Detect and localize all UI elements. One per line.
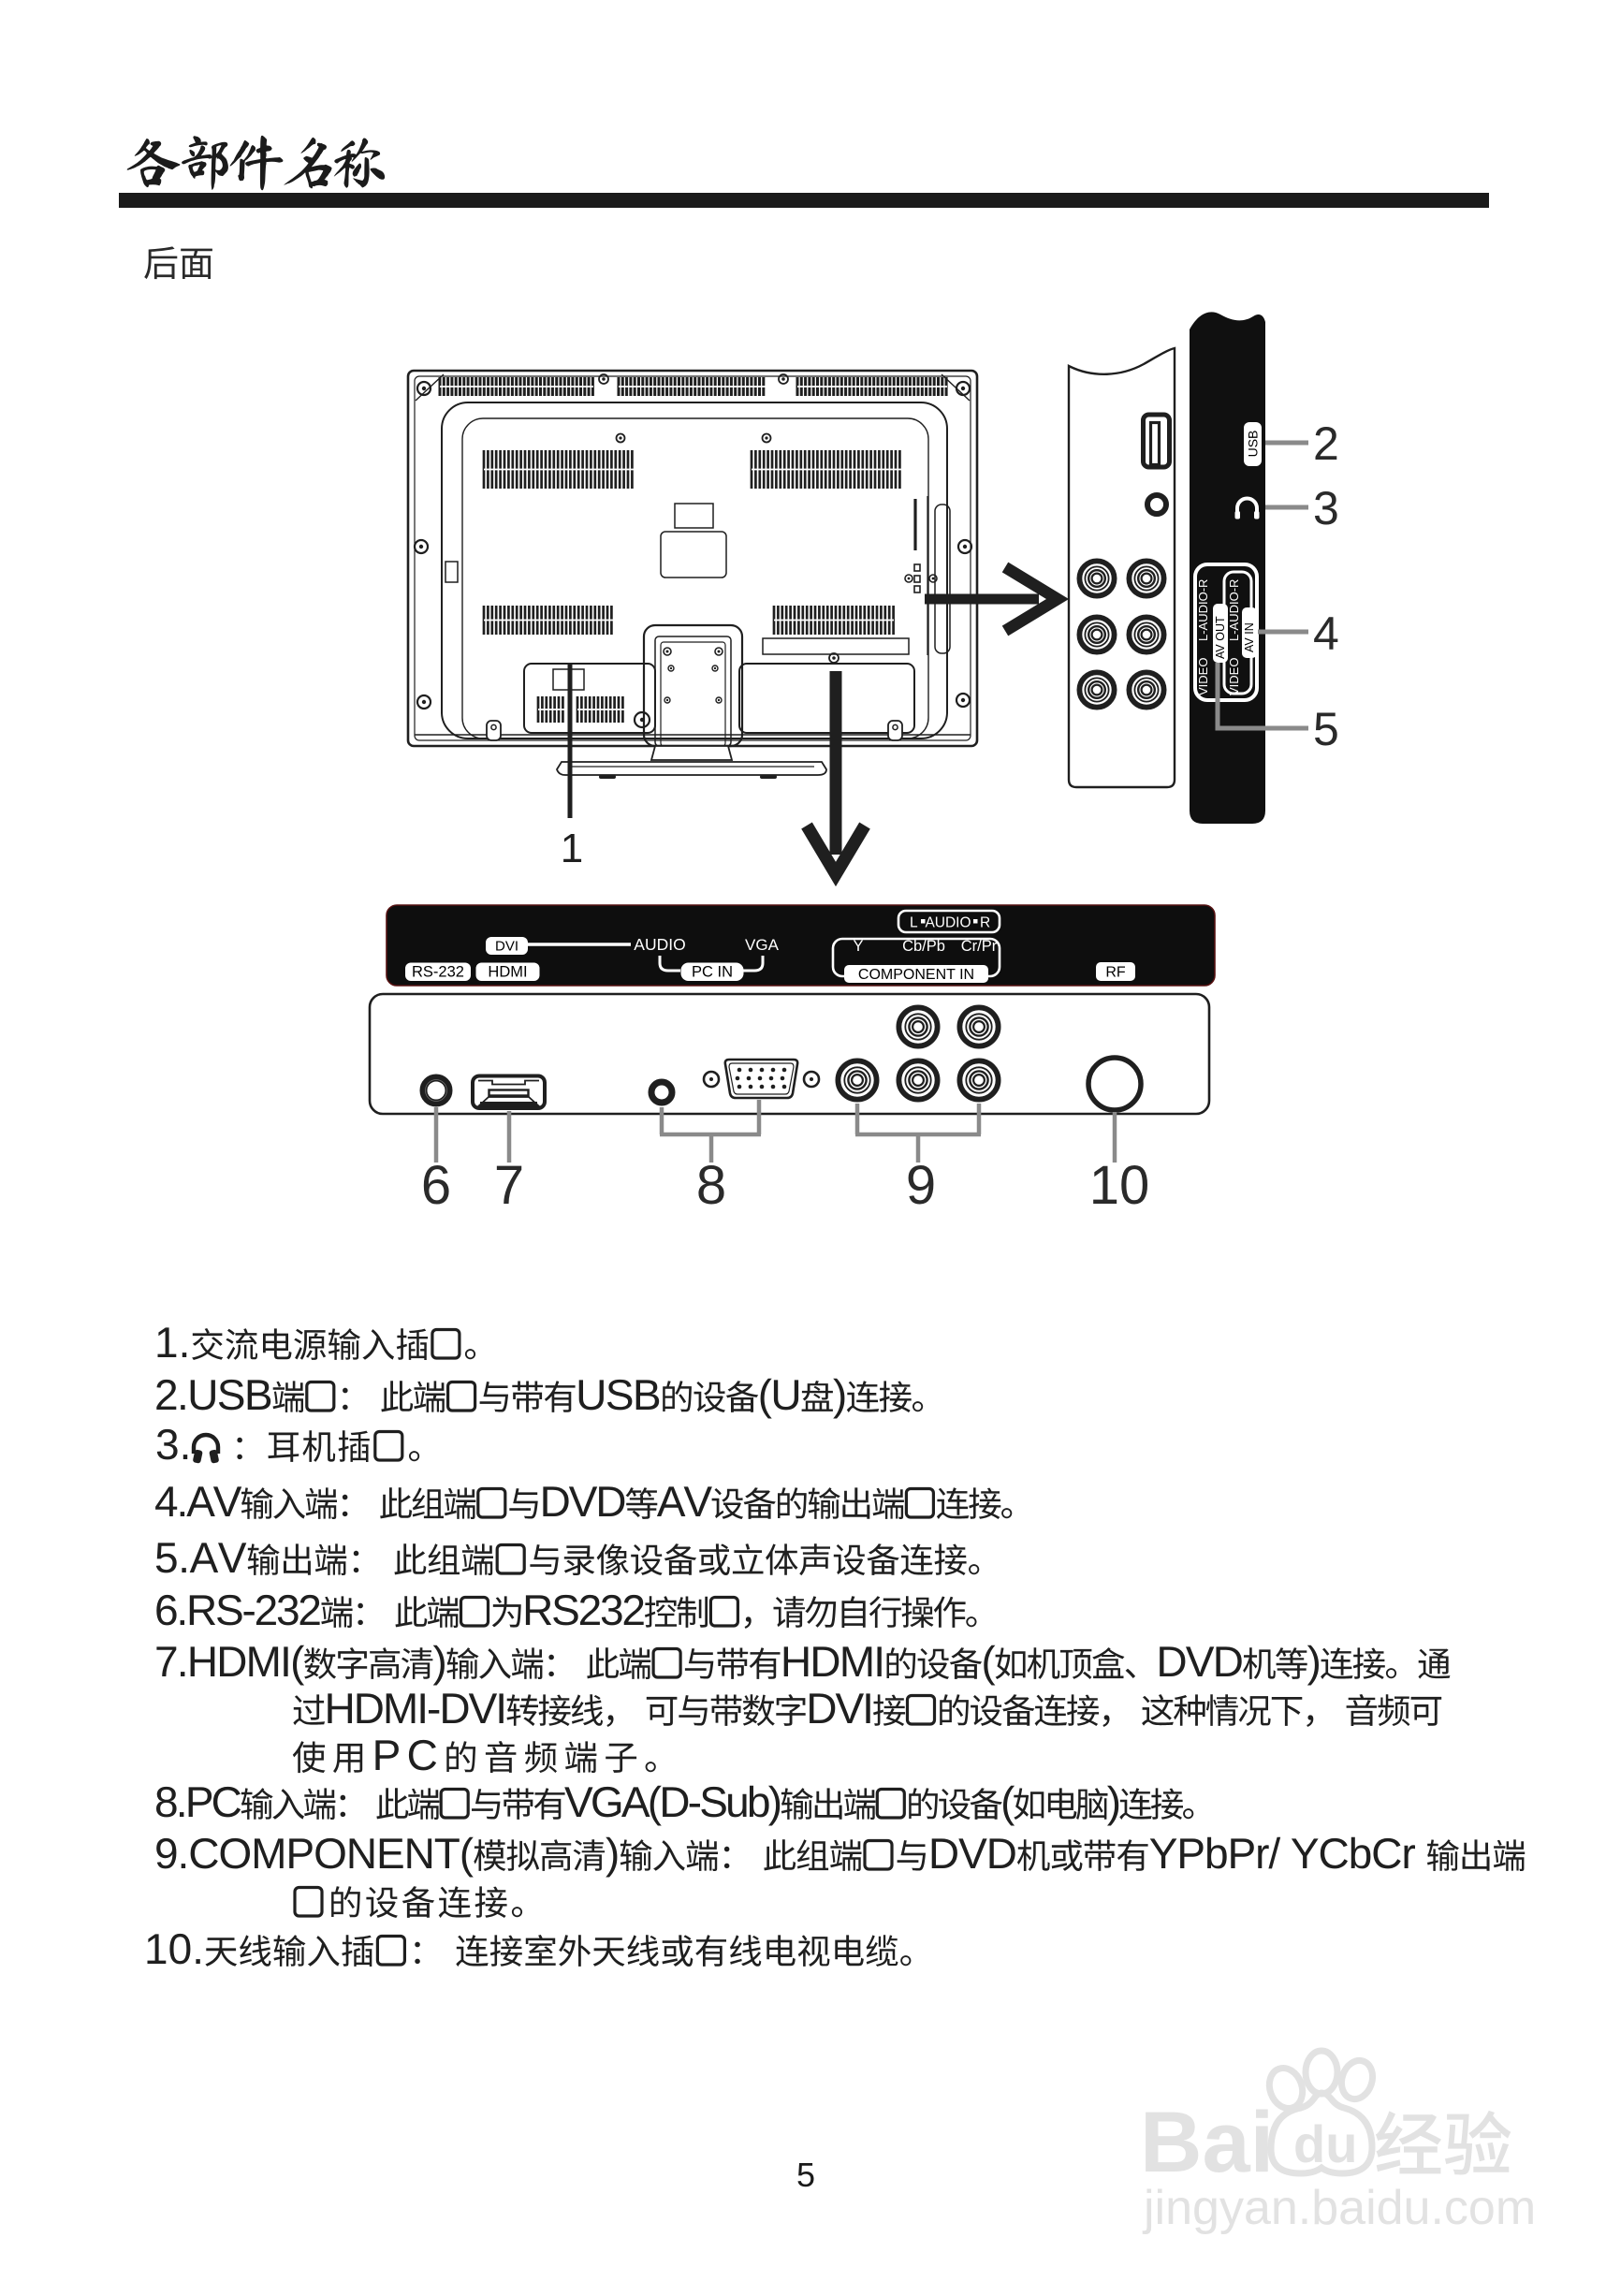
svg-text:VGA: VGA xyxy=(745,936,780,954)
svg-text:Cb/Pb: Cb/Pb xyxy=(902,938,945,955)
svg-text:AV OUT: AV OUT xyxy=(1214,616,1227,659)
svg-text:8: 8 xyxy=(696,1155,726,1216)
svg-text:jingyan.baidu.com: jingyan.baidu.com xyxy=(1142,2181,1536,2235)
svg-text:9: 9 xyxy=(906,1155,936,1216)
svg-text:5: 5 xyxy=(1313,703,1339,755)
svg-text:VIDEO: VIDEO xyxy=(1227,658,1241,695)
svg-text:RS-232: RS-232 xyxy=(412,964,464,981)
svg-text:L-AUDIO-R: L-AUDIO-R xyxy=(1196,579,1210,641)
svg-text:Cr/Pr: Cr/Pr xyxy=(961,938,998,955)
svg-text:HDMI: HDMI xyxy=(488,964,527,981)
svg-text:4: 4 xyxy=(1313,607,1339,660)
svg-text:AUDIO: AUDIO xyxy=(925,915,971,931)
svg-text:VIDEO: VIDEO xyxy=(1196,658,1210,695)
svg-text:6: 6 xyxy=(421,1155,451,1216)
svg-text:du: du xyxy=(1293,2114,1357,2173)
svg-text:DVI: DVI xyxy=(495,939,518,955)
svg-text:1: 1 xyxy=(561,826,583,871)
svg-text:10: 10 xyxy=(1089,1155,1150,1216)
svg-text:COMPONENT IN: COMPONENT IN xyxy=(858,967,974,983)
svg-text:AV IN: AV IN xyxy=(1243,622,1256,652)
svg-text:5: 5 xyxy=(796,2156,815,2194)
svg-text:3: 3 xyxy=(1313,482,1339,534)
svg-text:Y: Y xyxy=(853,938,863,955)
svg-text:USB: USB xyxy=(1246,431,1261,458)
svg-text:L: L xyxy=(910,915,918,931)
svg-text:L-AUDIO-R: L-AUDIO-R xyxy=(1227,579,1241,641)
svg-text:RF: RF xyxy=(1105,965,1126,981)
svg-text:7: 7 xyxy=(494,1155,524,1216)
svg-text:AUDIO: AUDIO xyxy=(634,935,685,954)
svg-text:R: R xyxy=(980,915,990,931)
svg-text:PC IN: PC IN xyxy=(692,964,733,981)
svg-text:Bai: Bai xyxy=(1140,2095,1274,2190)
svg-text:2: 2 xyxy=(1313,417,1339,470)
